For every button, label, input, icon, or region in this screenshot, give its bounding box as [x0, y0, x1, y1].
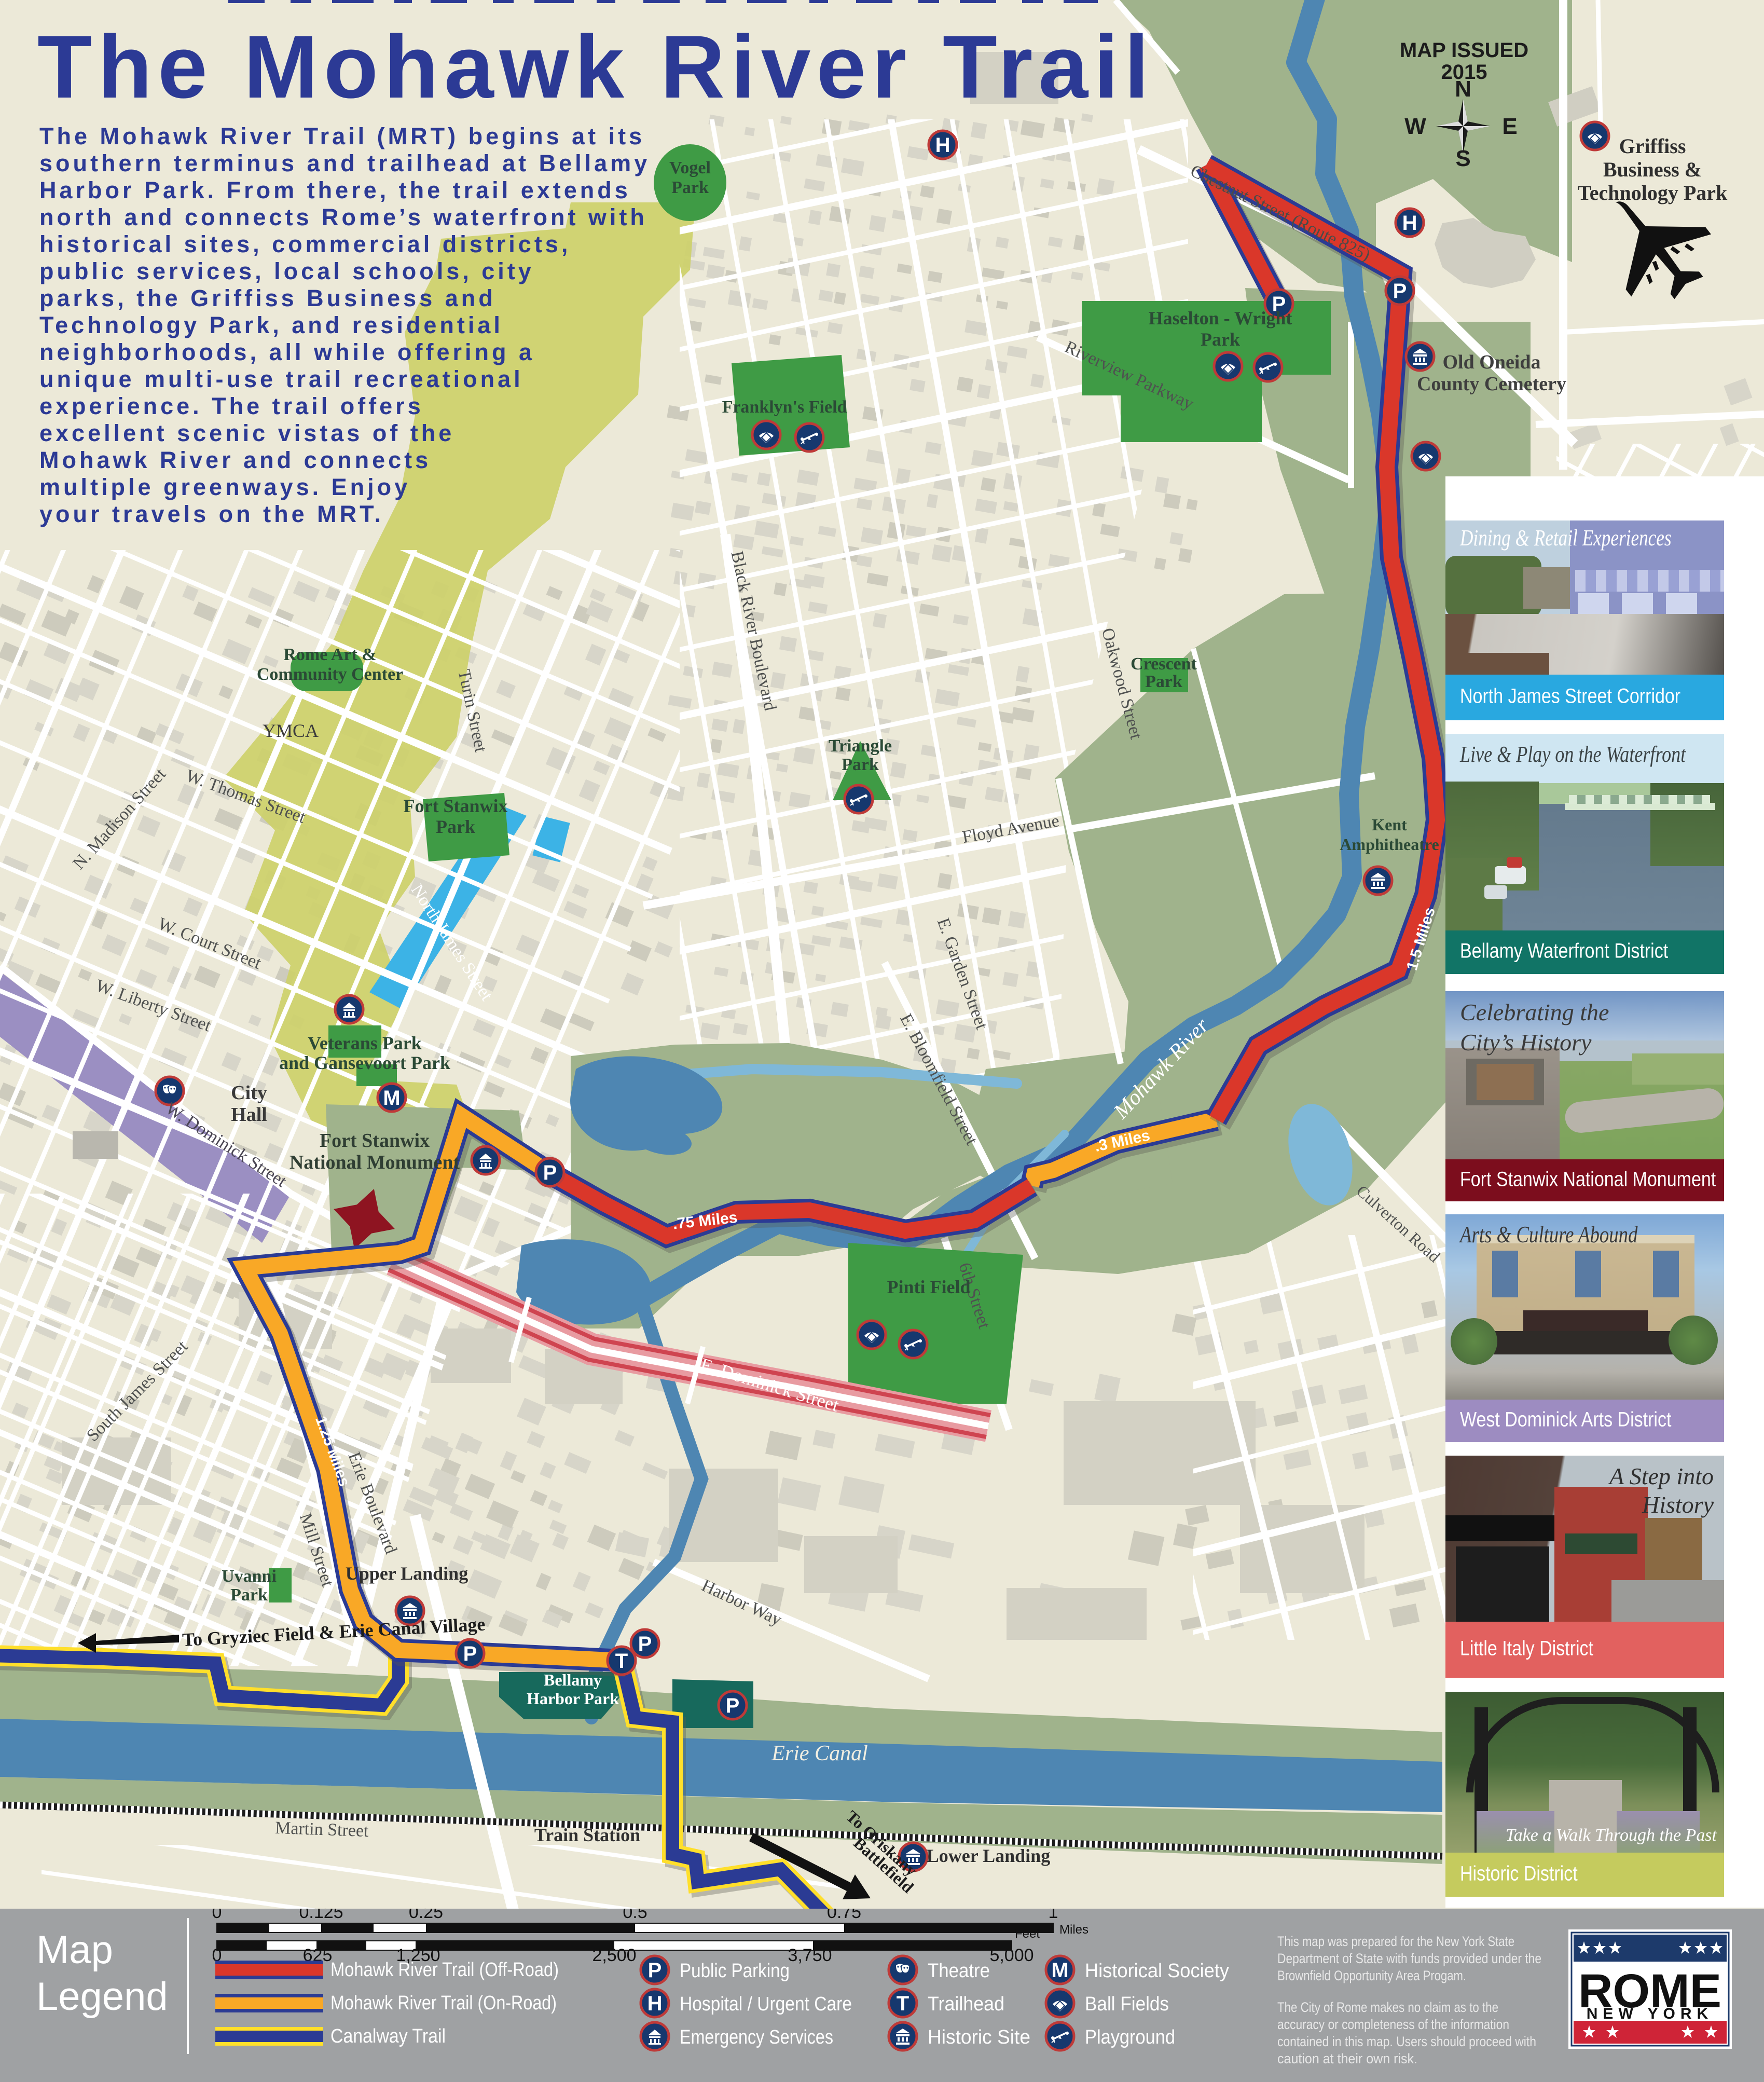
svg-text:Canalway Trail: Canalway Trail [330, 2025, 446, 2047]
svg-text:Fort Stanwix: Fort Stanwix [404, 796, 508, 816]
svg-text:Business &: Business & [1603, 158, 1702, 181]
svg-text:Crescent: Crescent [1131, 654, 1197, 674]
svg-text:Mohawk River Trail (Off-Road): Mohawk River Trail (Off-Road) [330, 1959, 559, 1981]
svg-text:Train Station: Train Station [534, 1825, 640, 1845]
svg-text:accuracy or completeness of th: accuracy or completeness of the informat… [1277, 2017, 1509, 2032]
svg-text:Hall: Hall [231, 1104, 267, 1126]
svg-text:3,750: 3,750 [788, 1946, 832, 1965]
svg-text:0: 0 [212, 1909, 222, 1922]
svg-text:contained in this map. Users s: contained in this map. Users should proc… [1277, 2034, 1536, 2049]
svg-text:1: 1 [1049, 1909, 1058, 1922]
svg-text:Emergency Services: Emergency Services [680, 2026, 833, 2048]
svg-text:Haselton - Wright: Haselton - Wright [1149, 308, 1292, 328]
svg-text:Vogel: Vogel [669, 158, 711, 177]
svg-text:Hospital / Urgent Care: Hospital / Urgent Care [680, 1993, 852, 2015]
svg-text:0.125: 0.125 [299, 1909, 343, 1922]
svg-text:Technology Park: Technology Park [1578, 181, 1728, 204]
svg-text:Historical Society: Historical Society [1085, 1960, 1229, 1982]
svg-text:0.5: 0.5 [623, 1909, 647, 1922]
svg-text:Bellamy: Bellamy [544, 1670, 602, 1689]
svg-text:Old Oneida: Old Oneida [1443, 351, 1541, 373]
svg-text:Park: Park [436, 816, 475, 837]
svg-text:Upper Landing: Upper Landing [346, 1563, 468, 1584]
svg-text:Map: Map [36, 1928, 113, 1972]
svg-text:Department of State with funds: Department of State with funds provided … [1277, 1951, 1541, 1966]
svg-text:Historic Site: Historic Site [928, 2026, 1030, 2048]
svg-text:and Gansevoort Park: and Gansevoort Park [279, 1052, 450, 1073]
svg-text:5,000: 5,000 [989, 1946, 1033, 1965]
svg-text:NEW YORK: NEW YORK [1587, 2005, 1713, 2022]
svg-text:Amphitheatre: Amphitheatre [1340, 835, 1439, 854]
svg-text:Public Parking: Public Parking [680, 1960, 790, 1982]
svg-text:S: S [1455, 146, 1470, 171]
svg-text:Miles: Miles [1059, 1923, 1088, 1937]
svg-text:The City of Rome makes no clai: The City of Rome makes no claim as to th… [1277, 1999, 1498, 2015]
svg-text:Triangle: Triangle [829, 736, 892, 756]
svg-text:Lower Landing: Lower Landing [927, 1845, 1050, 1866]
svg-text:Playground: Playground [1085, 2026, 1175, 2048]
svg-text:Theatre: Theatre [928, 1960, 990, 1982]
svg-text:Uvanni: Uvanni [222, 1567, 277, 1586]
svg-text:0.25: 0.25 [409, 1909, 443, 1922]
svg-text:Community Center: Community Center [257, 665, 403, 684]
svg-text:Park: Park [842, 755, 879, 774]
svg-text:This map was prepared for the: This map was prepared for the New York S… [1277, 1934, 1514, 1949]
svg-text:Legend: Legend [36, 1975, 168, 2019]
svg-text:Park: Park [1201, 329, 1240, 350]
svg-text:County Cemetery: County Cemetery [1417, 373, 1566, 395]
svg-text:Ball Fields: Ball Fields [1085, 1993, 1169, 2015]
svg-text:MAP ISSUED: MAP ISSUED [1400, 39, 1528, 62]
svg-text:Pinti Field: Pinti Field [887, 1277, 971, 1297]
svg-text:Martin Street: Martin Street [275, 1818, 369, 1841]
svg-text:Harbor Park: Harbor Park [527, 1689, 619, 1708]
svg-text:caution at their own risk.: caution at their own risk. [1277, 2051, 1417, 2066]
svg-text:Brownfield Opportunity Area Pr: Brownfield Opportunity Area Progam. [1277, 1968, 1466, 1983]
svg-text:National Monument: National Monument [290, 1152, 460, 1173]
svg-text:Park: Park [671, 178, 709, 197]
svg-text:YMCA: YMCA [263, 720, 319, 741]
svg-text:Trailhead: Trailhead [928, 1993, 1004, 2015]
svg-text:Veterans Park: Veterans Park [308, 1033, 422, 1053]
svg-text:2,500: 2,500 [592, 1946, 636, 1965]
svg-text:Feet: Feet [1015, 1927, 1040, 1941]
svg-text:Rome Art &: Rome Art & [283, 645, 376, 664]
svg-text:Park: Park [230, 1585, 268, 1605]
svg-text:Mohawk River Trail (On-Road): Mohawk River Trail (On-Road) [330, 1992, 557, 2014]
svg-text:Fort Stanwix: Fort Stanwix [320, 1130, 430, 1152]
svg-text:0.75: 0.75 [827, 1909, 861, 1922]
svg-text:Kent: Kent [1372, 815, 1407, 834]
svg-text:Franklyn's Field: Franklyn's Field [722, 398, 847, 417]
svg-text:2015: 2015 [1441, 61, 1487, 84]
svg-text:Park: Park [1145, 672, 1182, 691]
svg-text:W: W [1404, 114, 1426, 139]
svg-text:City: City [231, 1082, 267, 1104]
svg-text:E: E [1502, 114, 1517, 139]
svg-text:Erie Canal: Erie Canal [771, 1742, 868, 1765]
svg-text:Griffiss: Griffiss [1619, 134, 1686, 158]
